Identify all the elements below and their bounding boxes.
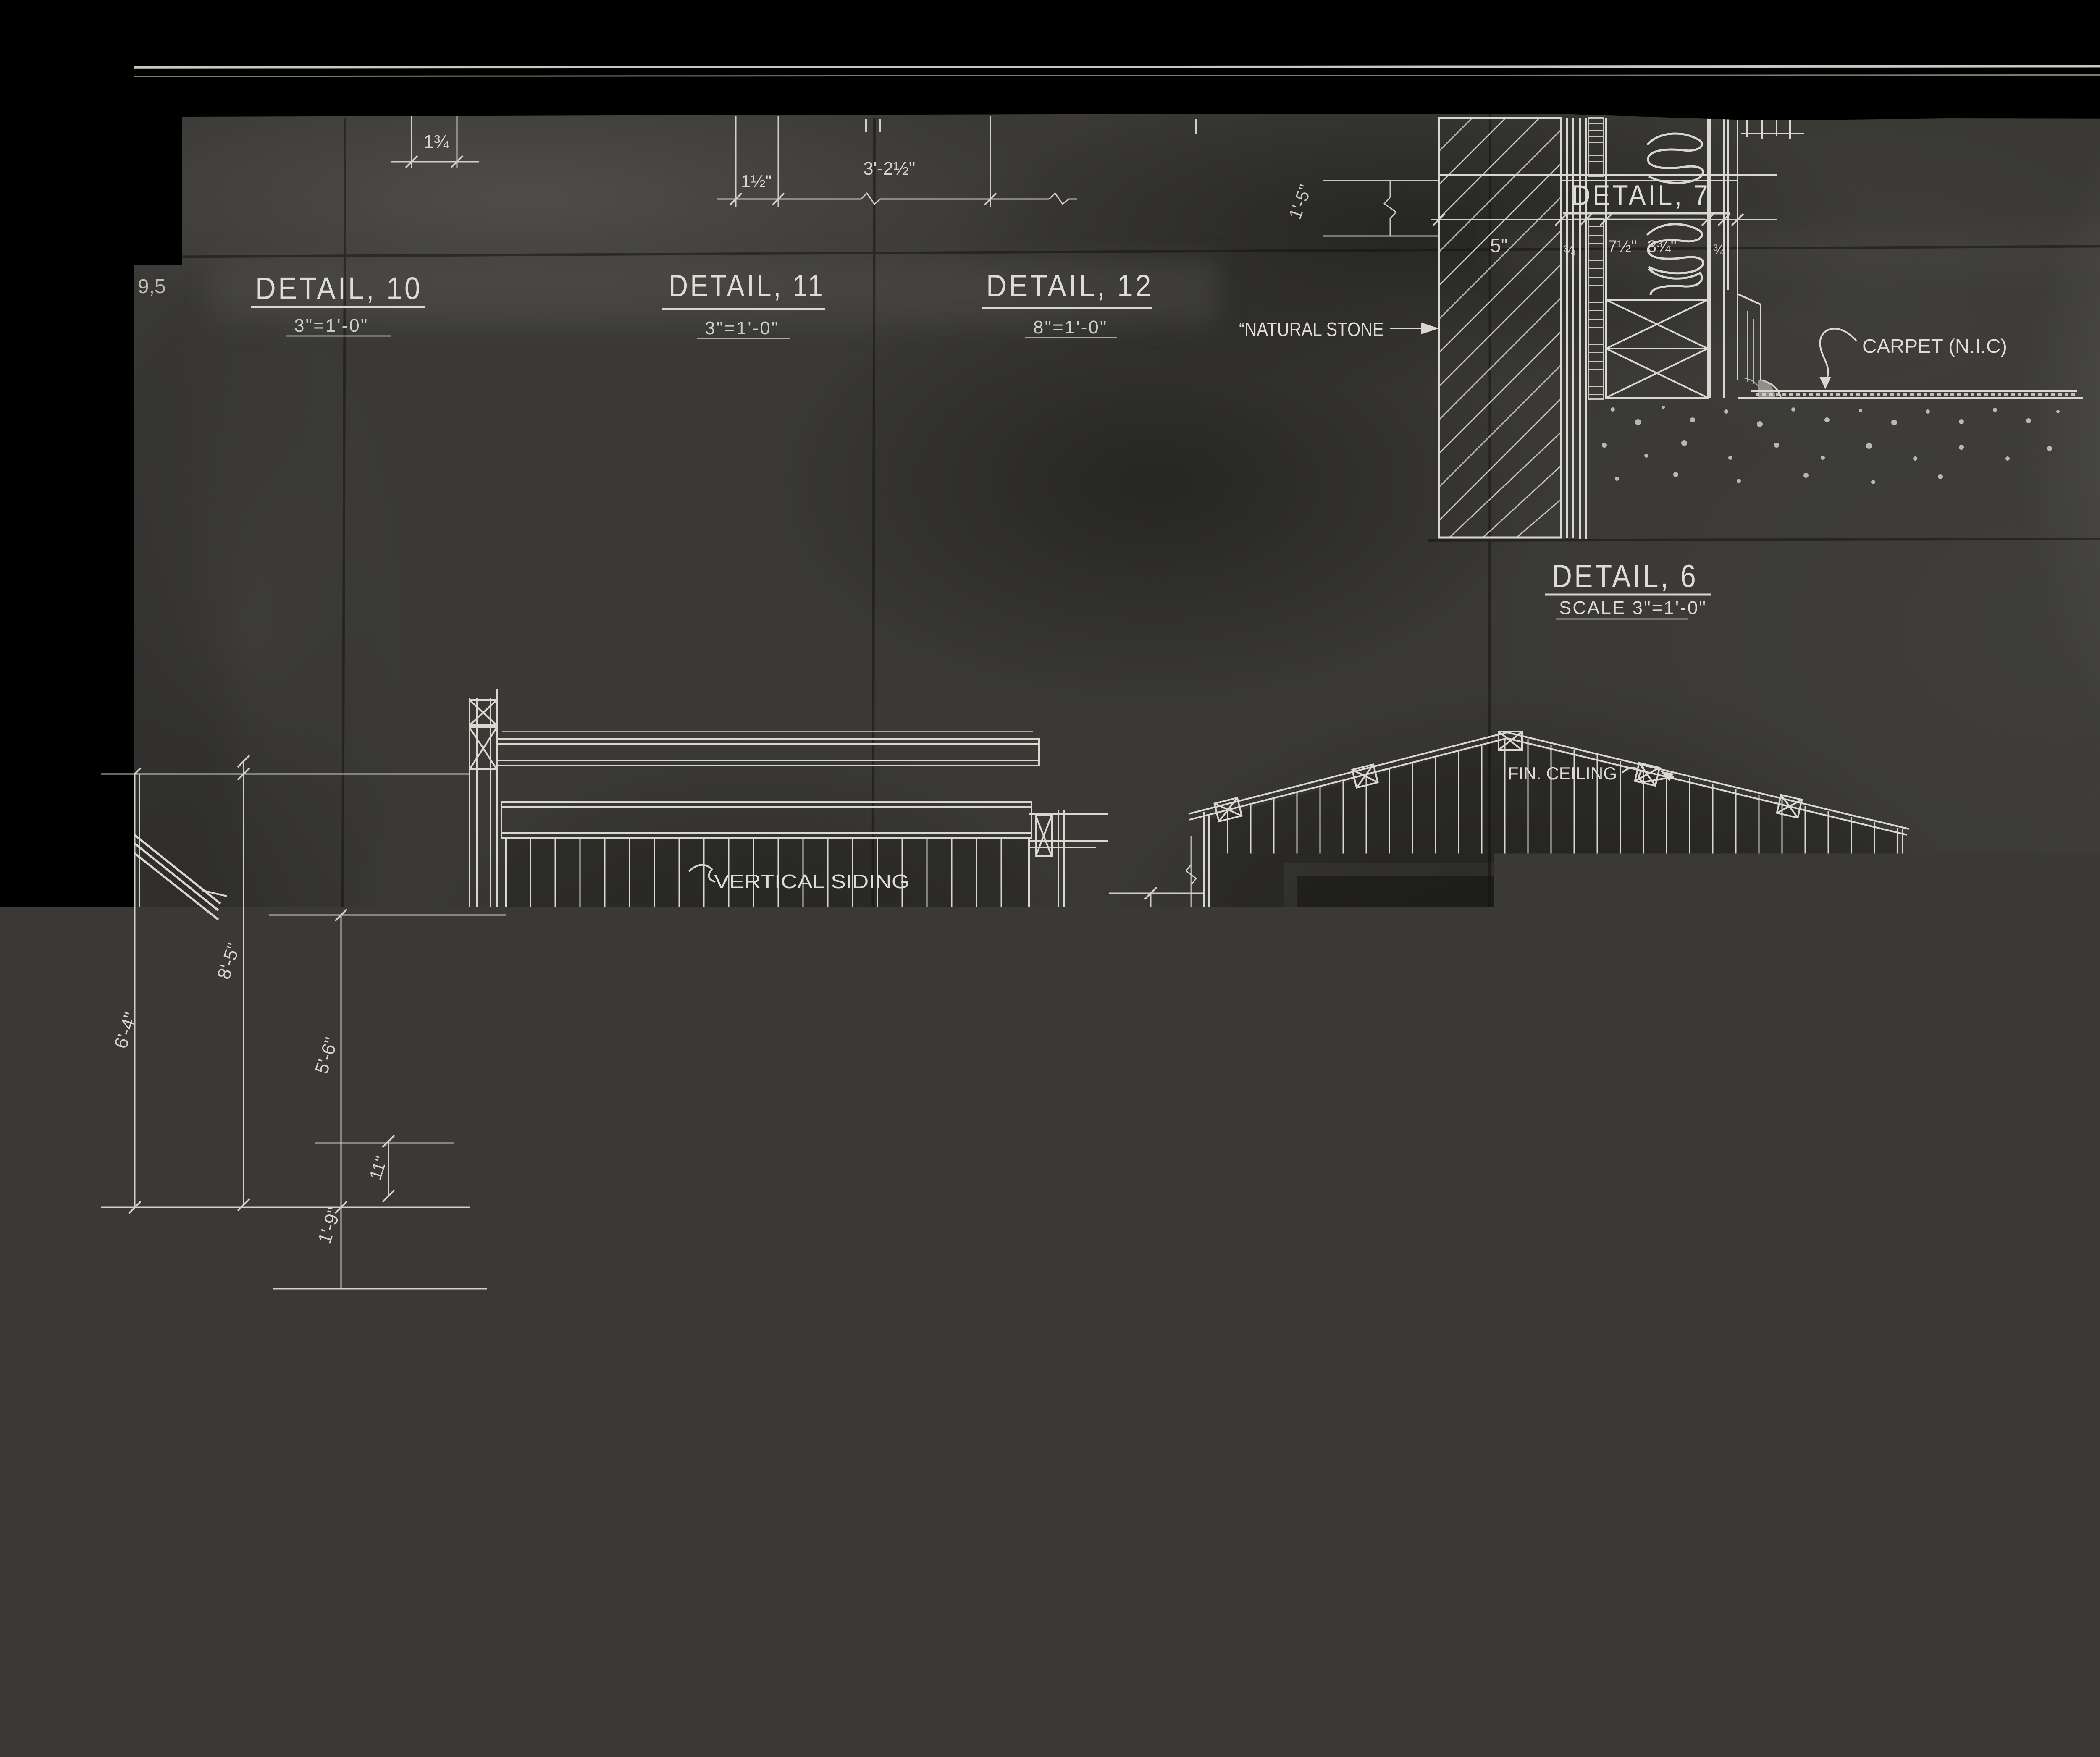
svg-text:SCALE ½"=1'-0": SCALE ½"=1'-0" [678,1517,837,1538]
svg-text:GL.: GL. [1361,888,1388,907]
svg-text:3"=1'-0": 3"=1'-0" [294,315,368,336]
svg-text:CHIEF ARCHITECT: CHIEF ARCHITECT [1847,1578,2066,1600]
svg-text:SCALE ½"=1'-0": SCALE ½"=1'-0" [1490,1509,1649,1529]
svg-text:4'BASEBOARD: 4'BASEBOARD [689,1276,857,1297]
svg-text:G: G [1601,1000,1620,1026]
svg-text:3"=1'-0": 3"=1'-0" [705,318,779,338]
svg-text:D,3: D,3 [875,1162,906,1185]
svg-text:8"=1'-0": 8"=1'-0" [1033,317,1108,338]
svg-text:CURTAIN TRACK: CURTAIN TRACK [1693,941,1806,961]
svg-text:FIN. CEILING: FIN. CEILING [1508,763,1617,783]
svg-text:1½": 1½" [741,171,772,191]
svg-text:D,7: D,7 [610,1255,640,1277]
svg-text:SECTION, A-A: SECTION, A-A [659,1427,865,1461]
svg-text:1¾: 1¾ [423,131,449,152]
svg-text:W: W [1373,992,1390,1013]
svg-text:3¾": 3¾" [1647,237,1677,256]
svg-text:GL: GL [1725,886,1748,905]
svg-text:GL.: GL. [1535,1007,1562,1025]
svg-text:GL: GL [1542,886,1564,905]
svg-text:¾: ¾ [1563,243,1575,259]
svg-text:(THIS HEIGHT): (THIS HEIGHT) [1705,965,1795,982]
svg-text:F: F [759,1012,775,1041]
svg-text:D,6: D,6 [607,1305,637,1327]
svg-text:SCALE 3"=1'-0": SCALE 3"=1'-0" [1559,598,1707,618]
svg-text:DETAIL, 12: DETAIL, 12 [986,268,1153,303]
svg-text:D,9: D,9 [606,932,637,955]
svg-text:D,10: D,10 [1243,1037,1286,1059]
svg-text:ELEVATION OF WINDOW TYPE,“G”: ELEVATION OF WINDOW TYPE,“G” [1378,1467,1768,1495]
svg-text:3'-2½": 3'-2½" [863,158,915,179]
svg-text:“NATURAL STONE: “NATURAL STONE [1239,318,1384,340]
svg-text:DETAIL, 7: DETAIL, 7 [1572,179,1710,211]
svg-text:GL.: GL. [1721,1005,1748,1023]
svg-text:7½": 7½" [1608,237,1637,256]
svg-text:DETAIL, 11: DETAIL, 11 [669,268,825,303]
svg-text:CARPET (N.I.C): CARPET (N.I.C) [1862,335,2007,357]
svg-text:4: 4 [1377,1012,1387,1032]
svg-text:DETAIL, 10: DETAIL, 10 [255,271,423,306]
svg-text:D,8: D,8 [608,1112,639,1134]
svg-text:D,4: D,4 [707,1048,739,1070]
svg-text:VERTICAL SIDING: VERTICAL SIDING [714,871,909,892]
svg-text:D,12: D,12 [1528,940,1571,962]
svg-text:D,1: D,1 [428,1165,460,1187]
svg-text:D,11: D,11 [1482,1036,1523,1058]
svg-text:ELEVATION OF WINDOW TYPE,“F”: ELEVATION OF WINDOW TYPE,“F” [563,1474,949,1502]
svg-text:5": 5" [1490,234,1508,256]
svg-text:SECTION, B-B: SECTION, B-B [1452,1417,1659,1450]
svg-text:¾: ¾ [1713,242,1725,258]
svg-text:9,5: 9,5 [138,275,166,298]
svg-text:CURTAIN TRACK (THIS HEIGHT): CURTAIN TRACK (THIS HEIGHT) [719,967,971,988]
svg-text:DETAIL, 6: DETAIL, 6 [1552,559,1698,594]
